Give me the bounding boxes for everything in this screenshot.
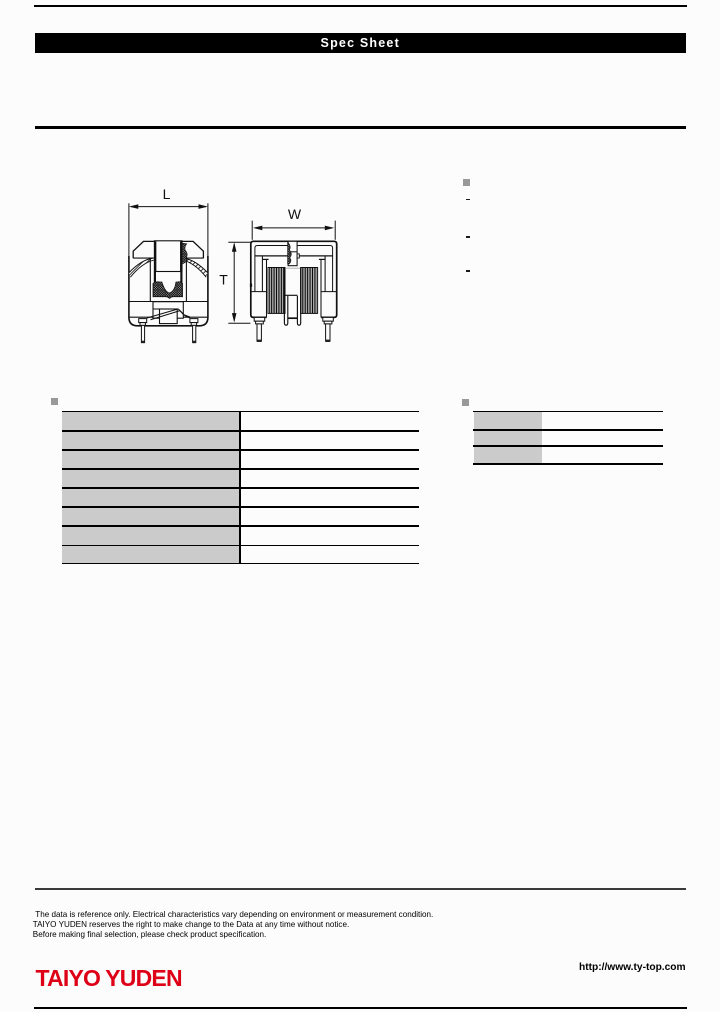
svg-text:T: T [219, 271, 228, 287]
svg-text:W: W [288, 206, 302, 222]
svg-text:L: L [163, 186, 171, 202]
